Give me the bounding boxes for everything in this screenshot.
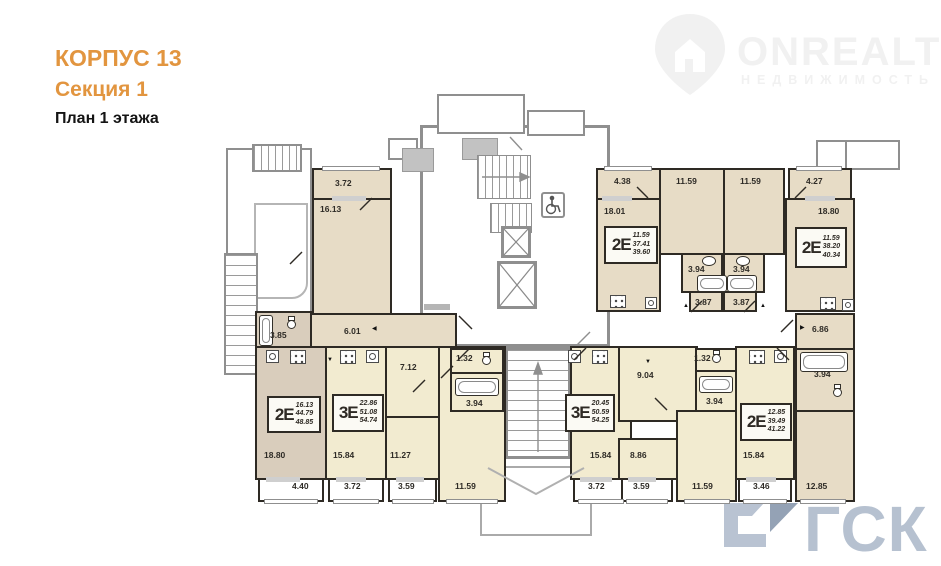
- washer-icon: [568, 350, 581, 363]
- washer-icon: [645, 297, 657, 309]
- elevator-small: [501, 226, 531, 258]
- total-area: 40.34: [823, 252, 841, 260]
- area-room: 18.80: [264, 450, 285, 460]
- balcony-divider: [845, 140, 847, 170]
- area-bath: 3.94: [706, 396, 723, 406]
- apartment-area: 44.79: [296, 410, 314, 418]
- fire-escape-stairs: [224, 253, 258, 375]
- door-arrow: ▶: [800, 325, 805, 331]
- total-area: 48.85: [296, 419, 314, 427]
- balcony-door-window: [805, 196, 835, 201]
- area-room: 11.59: [676, 176, 697, 186]
- stove-icon: [290, 350, 306, 364]
- window: [446, 499, 498, 504]
- bathtub-icon: [727, 275, 757, 292]
- room-11-27: [385, 416, 440, 480]
- area-hall: 3.87: [733, 297, 750, 307]
- area-room: 11.59: [455, 481, 476, 491]
- living-area: 11.59: [633, 232, 651, 240]
- toilet-icon: [287, 316, 296, 329]
- room-8-86: [618, 438, 678, 480]
- window: [796, 166, 842, 171]
- window: [626, 499, 668, 504]
- area-room: 16.13: [320, 204, 341, 214]
- shaft-left: [402, 148, 434, 172]
- area-hall: 6.86: [812, 324, 829, 334]
- door-arrow: ▲: [683, 303, 689, 309]
- washer-icon: [366, 350, 379, 363]
- apartment-area: 38.20: [823, 243, 841, 251]
- bathtub-icon: [699, 376, 733, 393]
- area-hall: 6.01: [344, 326, 361, 336]
- washer-icon: [774, 350, 787, 363]
- entrance-vestibule: [437, 94, 525, 134]
- area-balcony: 4.27: [806, 176, 823, 186]
- total-area: 54.74: [360, 417, 378, 425]
- wheelchair-zone-box: [541, 192, 565, 218]
- stove-icon: [820, 297, 836, 310]
- window: [684, 499, 730, 504]
- area-balcony: 4.40: [292, 481, 309, 491]
- window: [743, 499, 787, 504]
- total-area: 39.60: [633, 249, 651, 257]
- room-16-13: [312, 198, 392, 315]
- window: [322, 166, 380, 171]
- stove-icon: [592, 350, 608, 364]
- apartment-type: 3Е: [571, 403, 590, 423]
- area-room: 8.86: [630, 450, 647, 460]
- window: [264, 499, 318, 504]
- washer-icon: [266, 350, 279, 363]
- area-balcony: 3.72: [344, 481, 361, 491]
- apartment-label-2e-bottom-left: 2Е 16.13 44.79 48.85: [267, 396, 321, 433]
- window: [578, 499, 624, 504]
- toilet-icon: [833, 384, 842, 397]
- area-hall: 7.12: [400, 362, 417, 372]
- area-bath: 3.94: [688, 264, 705, 274]
- stair-flight-upper: [477, 155, 531, 199]
- area-room: 15.84: [743, 450, 764, 460]
- apartment-area: 39.49: [768, 418, 786, 426]
- area-room: 18.80: [818, 206, 839, 216]
- onrealt-pin-house-icon: [645, 10, 735, 100]
- stove-icon: [610, 295, 626, 308]
- toilet-icon: [712, 350, 721, 363]
- stove-icon: [340, 350, 356, 364]
- hall-7-12: [385, 346, 440, 418]
- area-room: 11.59: [692, 481, 713, 491]
- corridor-window-bar: [424, 304, 450, 310]
- total-area: 41.22: [768, 426, 786, 434]
- door-arrow: ◀: [372, 326, 377, 332]
- apartment-type: 2Е: [612, 235, 631, 255]
- window: [800, 499, 846, 504]
- onrealt-logo-text: ONREALT: [737, 30, 941, 75]
- onrealt-subtitle: НЕДВИЖИМОСТЬ: [741, 73, 935, 87]
- area-bath: 3.85: [270, 330, 287, 340]
- area-room: 15.84: [590, 450, 611, 460]
- area-hall: 3.87: [695, 297, 712, 307]
- door-arrow: ▲: [760, 303, 766, 309]
- area-bath: 3.94: [466, 398, 483, 408]
- door-arrow: ▼: [645, 359, 651, 365]
- apartment-label-3e-left: 3Е 22.86 51.08 54.74: [332, 394, 384, 432]
- apartment-area: 50.59: [592, 409, 610, 417]
- door-arrow: ▼: [327, 357, 333, 363]
- gsk-logo-icon: [722, 497, 802, 550]
- apartment-type: 2Е: [802, 238, 821, 258]
- entrance-stairs-bottom: [505, 347, 571, 459]
- living-area: 11.59: [823, 235, 841, 243]
- area-wc: 1.32: [456, 353, 473, 363]
- stove-icon: [749, 350, 765, 364]
- area-bath: 3.94: [814, 369, 831, 379]
- bathtub-icon: [455, 378, 499, 396]
- living-area: 16.13: [296, 402, 314, 410]
- area-balcony: 3.72: [335, 178, 352, 188]
- apartment-label-2e-top-left: 2Е 11.59 37.41 39.60: [604, 226, 658, 264]
- balcony-door-window: [332, 196, 366, 201]
- toilet-icon: [482, 352, 491, 365]
- apartment-label-2e-top-right: 2Е 11.59 38.20 40.34: [795, 227, 847, 268]
- area-room: 12.85: [806, 481, 827, 491]
- area-balcony: 3.59: [398, 481, 415, 491]
- area-room: 18.01: [604, 206, 625, 216]
- elevator-large: [497, 261, 537, 309]
- window: [333, 499, 379, 504]
- area-room: 11.59: [740, 176, 761, 186]
- bathtub-icon: [697, 275, 727, 292]
- balcony-door-window: [602, 196, 632, 201]
- total-area: 54.25: [592, 417, 610, 425]
- vestibule-side-room: [527, 110, 585, 136]
- apartment-label-2e-bottom-right: 2Е 12.85 39.49 41.22: [740, 403, 792, 441]
- area-balcony: 3.72: [588, 481, 605, 491]
- apartment-type: 2Е: [275, 405, 294, 425]
- apartment-area: 51.08: [360, 409, 378, 417]
- washer-icon: [842, 299, 854, 311]
- apartment-type: 3Е: [339, 403, 358, 423]
- hall-6-01: [310, 313, 457, 350]
- window: [392, 499, 434, 504]
- area-wc: 1.32: [694, 353, 711, 363]
- entry-stairs-top-left: [252, 144, 302, 172]
- ramp-outline: [254, 203, 308, 299]
- apartment-area: 37.41: [633, 241, 651, 249]
- area-hall: 9.04: [637, 370, 654, 380]
- area-balcony: 3.59: [633, 481, 650, 491]
- apartment-type: 2Е: [747, 412, 766, 432]
- area-balcony: 4.38: [614, 176, 631, 186]
- area-room: 11.27: [390, 450, 411, 460]
- living-area: 22.86: [360, 400, 378, 408]
- area-bath: 3.94: [733, 264, 750, 274]
- window: [604, 166, 652, 171]
- living-area: 20.45: [592, 400, 610, 408]
- area-balcony: 3.46: [753, 481, 770, 491]
- area-room: 15.84: [333, 450, 354, 460]
- living-area: 12.85: [768, 409, 786, 417]
- apartment-label-3e-right: 3Е 20.45 50.59 54.25: [565, 394, 615, 432]
- floorplan-page: { "header": { "building": "КОРПУС 13", "…: [0, 0, 941, 550]
